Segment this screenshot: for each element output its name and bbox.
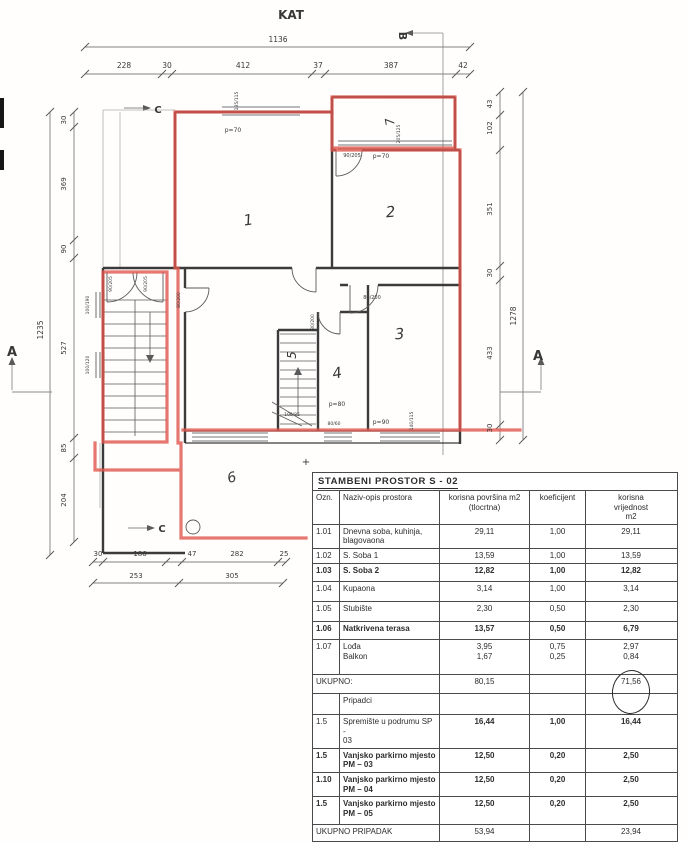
cell-ozn: 1.5	[313, 797, 339, 824]
header-koeficijent: koeficijent	[529, 491, 585, 524]
exterior-lines	[100, 110, 175, 508]
cell-povrsina: 3,14	[439, 582, 529, 601]
cell-koeficijent: 1,00	[529, 582, 585, 601]
cell-koeficijent: 0,75 0,25	[529, 640, 585, 674]
cell-vrijednost: 12,82	[585, 564, 676, 581]
cell-name: Stubište	[339, 602, 439, 621]
red-outline	[175, 112, 332, 268]
cell-koeficijent: 1,00	[529, 564, 585, 581]
door-label: 80/200	[363, 295, 381, 301]
dim-left: 85	[60, 444, 68, 453]
cell-koeficijent	[529, 694, 585, 714]
cell-koeficijent	[529, 825, 585, 842]
parapet-label: p=70	[225, 127, 242, 134]
header-vrijednost: korisna vrijednost m2	[585, 491, 676, 524]
cell-koeficijent: 1,00	[529, 549, 585, 563]
cell-povrsina: 29,11	[439, 525, 529, 548]
dim-right: 102	[486, 121, 494, 134]
section-a-left-line	[12, 364, 52, 392]
registration-cross: +	[302, 457, 310, 468]
dim-bottom: 47	[188, 550, 197, 558]
door-arc	[185, 288, 209, 312]
dim-bottom: 305	[225, 572, 238, 580]
dim-bottom: 186	[133, 550, 147, 558]
cell-koeficijent	[529, 675, 585, 693]
window-label: 80/60	[328, 421, 341, 427]
dim-right: 30	[486, 269, 494, 278]
dim-top: 37	[313, 61, 323, 70]
header-povrsina: korisna površina m2 (tlocrtna)	[439, 491, 529, 524]
cell-name: Dnevna soba, kuhinja, blagovaona	[339, 525, 439, 548]
header-ozn: Ozn.	[313, 491, 339, 524]
cell-ozn: 1.01	[313, 525, 339, 548]
windows	[96, 107, 452, 441]
parapet-label: p=80	[329, 401, 346, 408]
cell-vrijednost: 2,97 0,84	[585, 640, 676, 674]
table-body: 1.01Dnevna soba, kuhinja, blagovaona29,1…	[313, 524, 677, 842]
window-label: 135/115	[234, 92, 240, 111]
cell-vrijednost: 16,44	[585, 715, 676, 748]
door-arc	[318, 312, 340, 334]
row-label: UKUPNO:	[313, 675, 439, 693]
cell-ozn: 1.06	[313, 622, 339, 639]
cell-koeficijent: 0,20	[529, 797, 585, 824]
dim-left: 90	[60, 245, 68, 254]
cell-ozn: 1.5	[313, 715, 339, 748]
cell-povrsina: 12,82	[439, 564, 529, 581]
room-number-7: 7	[382, 116, 397, 126]
doors	[107, 150, 378, 334]
door-label: 90/205	[108, 276, 114, 292]
cell-name: Lođa Balkon	[339, 640, 439, 674]
dim-bottom: 25	[280, 550, 289, 558]
dim-top: 387	[384, 61, 399, 70]
cell-vrijednost: 71,56	[585, 675, 676, 693]
cell-povrsina: 53,94	[439, 825, 529, 842]
cell-name: Vanjsko parkirno mjesto PM – 03	[339, 749, 439, 772]
cell-ozn: 1.05	[313, 602, 339, 621]
table-row: 1.02S. Soba 113,591,0013,59	[313, 548, 677, 563]
scan-edge-mark	[0, 150, 4, 170]
dim-top: 42	[458, 61, 468, 70]
section-a-right-line	[500, 364, 541, 392]
cell-ozn: 1.10	[313, 773, 339, 796]
cell-vrijednost: 13,59	[585, 549, 676, 563]
table-title-text: STAMBENI PROSTOR S - 02	[318, 476, 458, 489]
cell-koeficijent: 0,20	[529, 773, 585, 796]
cell-vrijednost: 2,50	[585, 749, 676, 772]
table-row: 1.05Stubište2,300,502,30	[313, 601, 677, 621]
cell-povrsina: 3,95 1,67	[439, 640, 529, 674]
section-mark-c-top: C	[154, 105, 161, 116]
cell-name: Vanjsko parkirno mjesto PM – 05	[339, 797, 439, 824]
cell-povrsina: 2,30	[439, 602, 529, 621]
cell-name: Natkrivena terasa	[339, 622, 439, 639]
dim-right: 433	[486, 346, 494, 359]
cell-koeficijent: 0,20	[529, 749, 585, 772]
window-label: 100/190	[85, 296, 91, 315]
cell-name: Vanjsko parkirno mjesto PM – 04	[339, 773, 439, 796]
dim-left: 369	[60, 177, 68, 190]
table-row: 1.07Lođa Balkon3,95 1,670,75 0,252,97 0,…	[313, 639, 677, 674]
room-number-2: 2	[385, 203, 396, 222]
table-row: 1.03S. Soba 212,821,0012,82	[313, 563, 677, 581]
room-number-6: 6	[226, 469, 239, 487]
window-label: 140/115	[409, 412, 415, 431]
table-row: 1.5Spremište u podrumu SP - 0316,441,001…	[313, 714, 677, 748]
cell-povrsina: 16,44	[439, 715, 529, 748]
table-row: 1.5Vanjsko parkirno mjesto PM – 0512,500…	[313, 796, 677, 824]
window-label: 100/85	[284, 412, 300, 418]
door-label: 80/200	[310, 314, 316, 330]
reference-circle	[186, 520, 200, 534]
section-mark-b: B	[396, 32, 409, 40]
cell-koeficijent: 1,00	[529, 715, 585, 748]
scan-marks	[0, 98, 4, 170]
cell-koeficijent: 0,50	[529, 602, 585, 621]
arrowhead-up	[294, 367, 302, 375]
door-label: 90/205	[143, 276, 149, 292]
cell-name: S. Soba 1	[339, 549, 439, 563]
dim-right-total: 1278	[509, 306, 518, 325]
cell-koeficijent: 0,50	[529, 622, 585, 639]
cell-povrsina: 13,57	[439, 622, 529, 639]
cell-vrijednost: 2,30	[585, 602, 676, 621]
stairwell-walls	[103, 268, 185, 553]
table-total-row: UKUPNO:80,1571,56	[313, 674, 677, 693]
cell-povrsina: 12,50	[439, 797, 529, 824]
table-row: 1.10Vanjsko parkirno mjesto PM – 0412,50…	[313, 772, 677, 796]
dim-top-total: 1136	[268, 35, 287, 44]
table-title: STAMBENI PROSTOR S - 02	[313, 473, 677, 490]
table-header-row: Ozn. Naziv-opis prostora korisna površin…	[313, 490, 677, 524]
cell-vrijednost: 6,79	[585, 622, 676, 639]
wall	[340, 285, 460, 431]
cell-vrijednost: 2,50	[585, 773, 676, 796]
row-label: UKUPNO PRIPADAK	[313, 825, 439, 842]
cell-vrijednost: 23,94	[585, 825, 676, 842]
table-row: 1.06Natkrivena terasa13,570,506,79	[313, 621, 677, 639]
scanned-floor-plan-page: KAT1136228304123738742303699052785204123…	[0, 0, 687, 842]
cell-name: Kupaona	[339, 582, 439, 601]
room-number-4: 4	[331, 363, 344, 382]
dim-top: 228	[117, 61, 132, 70]
cell-povrsina: 12,50	[439, 749, 529, 772]
cell-vrijednost: 2,50	[585, 797, 676, 824]
room-number-5: 5	[285, 351, 299, 359]
cell-koeficijent: 1,00	[529, 525, 585, 548]
wall	[175, 112, 332, 268]
window-label: 205/125	[396, 125, 402, 144]
cell-ozn: 1.03	[313, 564, 339, 581]
dim-right: 30	[486, 424, 494, 433]
plan-title: KAT	[278, 8, 305, 22]
area-table: STAMBENI PROSTOR S - 02 Ozn. Naziv-opis …	[312, 472, 678, 842]
cell-povrsina: 80,15	[439, 675, 529, 693]
dim-left: 30	[60, 116, 68, 125]
cell-ozn: 1.5	[313, 749, 339, 772]
parapet-label: p=90	[373, 419, 390, 426]
section-mark-c-bottom: C	[158, 524, 165, 535]
table-row: 1.01Dnevna soba, kuhinja, blagovaona29,1…	[313, 524, 677, 548]
dim-right: 351	[486, 202, 494, 215]
dim-bottom: 282	[230, 550, 243, 558]
cell-vrijednost: 3,14	[585, 582, 676, 601]
scan-edge-mark	[0, 98, 4, 128]
dim-top: 30	[162, 61, 172, 70]
dim-bottom: 30	[94, 550, 103, 558]
cell-name: S. Soba 2	[339, 564, 439, 581]
table-row: 1.04Kupaona3,141,003,14	[313, 581, 677, 601]
dim-left: 204	[60, 493, 68, 507]
door-arc	[292, 268, 316, 292]
dim-bottom: 253	[129, 572, 142, 580]
cell-name: Spremište u podrumu SP - 03	[339, 715, 439, 748]
dim-left-total: 1235	[36, 320, 45, 339]
dim-right: 43	[486, 100, 494, 109]
parapet-label: p=70	[373, 153, 390, 160]
room-number-1: 1	[242, 210, 254, 229]
cell-ozn: 1.04	[313, 582, 339, 601]
door-label: 90/205	[343, 153, 361, 159]
room-number-3: 3	[394, 325, 405, 344]
cell-ozn	[313, 694, 339, 714]
table-row: 1.5Vanjsko parkirno mjesto PM – 0312,500…	[313, 748, 677, 772]
arrowhead-c-bottom	[147, 525, 155, 531]
cell-ozn: 1.07	[313, 640, 339, 674]
dim-left: 527	[60, 341, 68, 354]
red-outline	[332, 150, 460, 430]
cell-ozn: 1.02	[313, 549, 339, 563]
cell-povrsina: 12,50	[439, 773, 529, 796]
cell-vrijednost: 29,11	[585, 525, 676, 548]
door-label: 80/200	[176, 292, 182, 308]
window-underlays	[190, 105, 454, 444]
window-label: 100/120	[85, 356, 91, 375]
section-mark-a-right: A	[533, 349, 543, 364]
cell-povrsina	[439, 694, 529, 714]
arrowhead-down	[146, 355, 154, 363]
table-total-row: UKUPNO PRIPADAK53,9423,94	[313, 824, 677, 842]
dim-top: 412	[236, 61, 251, 70]
header-naziv: Naziv-opis prostora	[339, 491, 439, 524]
cell-povrsina: 13,59	[439, 549, 529, 563]
red-terrace	[95, 443, 306, 538]
cell-name: Pripadci	[339, 694, 439, 714]
stair-treads-main	[104, 300, 167, 436]
section-mark-a-left: A	[7, 345, 17, 360]
